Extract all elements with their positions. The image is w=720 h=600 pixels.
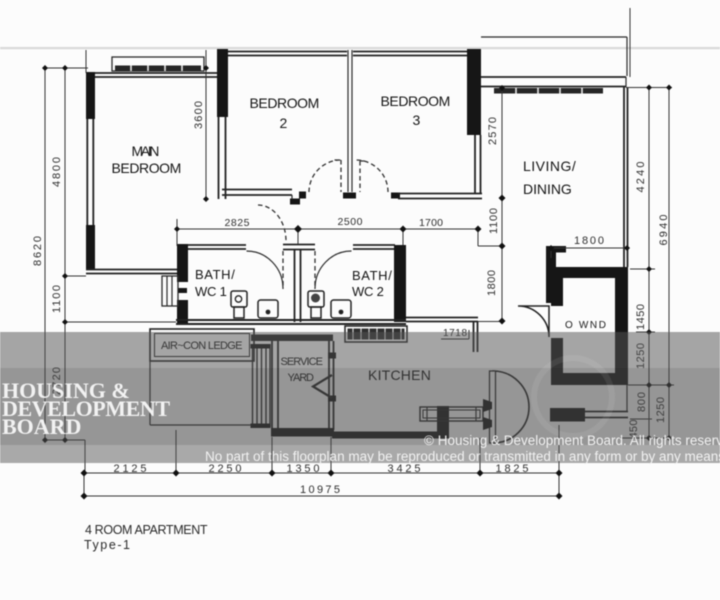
- svg-text:1450: 1450: [635, 304, 647, 330]
- svg-text:1100: 1100: [488, 208, 500, 234]
- svg-text:© Housing & Development Board.: © Housing & Development Board. All right…: [424, 433, 720, 448]
- svg-text:1100: 1100: [51, 285, 63, 313]
- svg-text:WC 2: WC 2: [352, 284, 385, 299]
- svg-text:1800: 1800: [574, 235, 604, 247]
- svg-text:DINING: DINING: [523, 181, 573, 197]
- svg-text:4 ROOM APARTMENT: 4 ROOM APARTMENT: [85, 523, 209, 537]
- svg-text:3: 3: [413, 112, 422, 128]
- svg-text:BEDROOM: BEDROOM: [112, 160, 183, 176]
- svg-text:BATH/: BATH/: [352, 268, 393, 283]
- svg-text:LIVING/: LIVING/: [523, 158, 577, 174]
- svg-text:8620: 8620: [32, 236, 44, 266]
- svg-text:O WND: O WND: [565, 320, 607, 331]
- svg-text:1800: 1800: [486, 270, 498, 296]
- svg-text:10975: 10975: [300, 484, 340, 496]
- svg-text:6940: 6940: [658, 215, 670, 246]
- svg-text:BEDROOM: BEDROOM: [381, 93, 452, 109]
- svg-text:BATH/: BATH/: [195, 267, 236, 282]
- svg-text:1700: 1700: [419, 217, 443, 229]
- svg-text:No part of this floorplan may: No part of this floorplan may be reprodu…: [205, 449, 720, 464]
- svg-text:BEDROOM: BEDROOM: [250, 95, 321, 111]
- svg-text:BOARD: BOARD: [2, 414, 81, 439]
- svg-text:2825: 2825: [225, 217, 250, 229]
- svg-text:Type-1: Type-1: [84, 538, 131, 552]
- svg-text:MAIN: MAIN: [132, 143, 161, 159]
- svg-text:4240: 4240: [635, 162, 647, 193]
- svg-text:2: 2: [280, 115, 289, 131]
- svg-text:3600: 3600: [193, 101, 205, 129]
- svg-text:2500: 2500: [338, 216, 363, 228]
- svg-text:4800: 4800: [51, 157, 63, 187]
- svg-text:2570: 2570: [487, 117, 499, 145]
- svg-text:WC 1: WC 1: [195, 284, 228, 299]
